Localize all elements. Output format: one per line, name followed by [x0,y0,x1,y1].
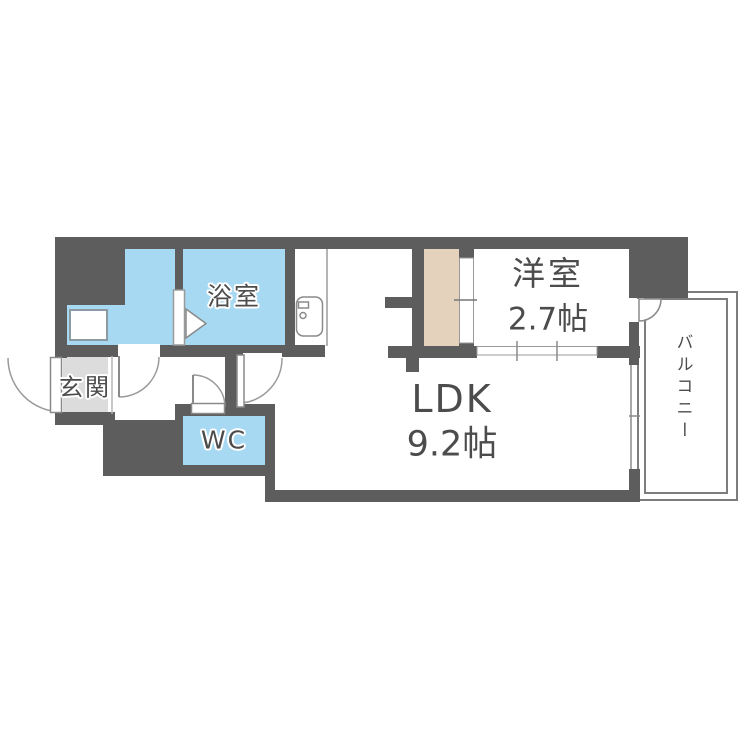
entrance-label: 玄関 [59,368,111,403]
wc-door-swing-icon [192,375,226,414]
kitchen-sink-icon [297,297,323,336]
window-icon [629,365,640,469]
plan-linework [0,0,750,750]
floor-plan: 玄関 浴室 WC 洋室 2.7帖 LDK 9.2帖 バルコニー [0,0,750,750]
balcony-label: バルコニー [671,333,696,443]
closet-door-icon [454,258,477,343]
ldk-label: LDK [411,377,492,421]
entrance-door-swing-icon [8,358,62,413]
washroom-door-swing-icon [118,344,160,397]
folding-door-triangle-icon [174,290,207,345]
ldk-area: 9.2帖 [407,416,498,467]
western-room-area: 2.7帖 [508,294,588,339]
balcony-door-swing-icon [628,299,661,322]
wc-label: WC [201,426,247,455]
western-room-label: 洋室 [512,247,584,295]
hall-door-swing-icon [237,355,282,407]
washing-machine-pan-icon [70,310,107,340]
bathroom-label: 浴室 [207,277,261,313]
sliding-door-icon [477,341,597,361]
